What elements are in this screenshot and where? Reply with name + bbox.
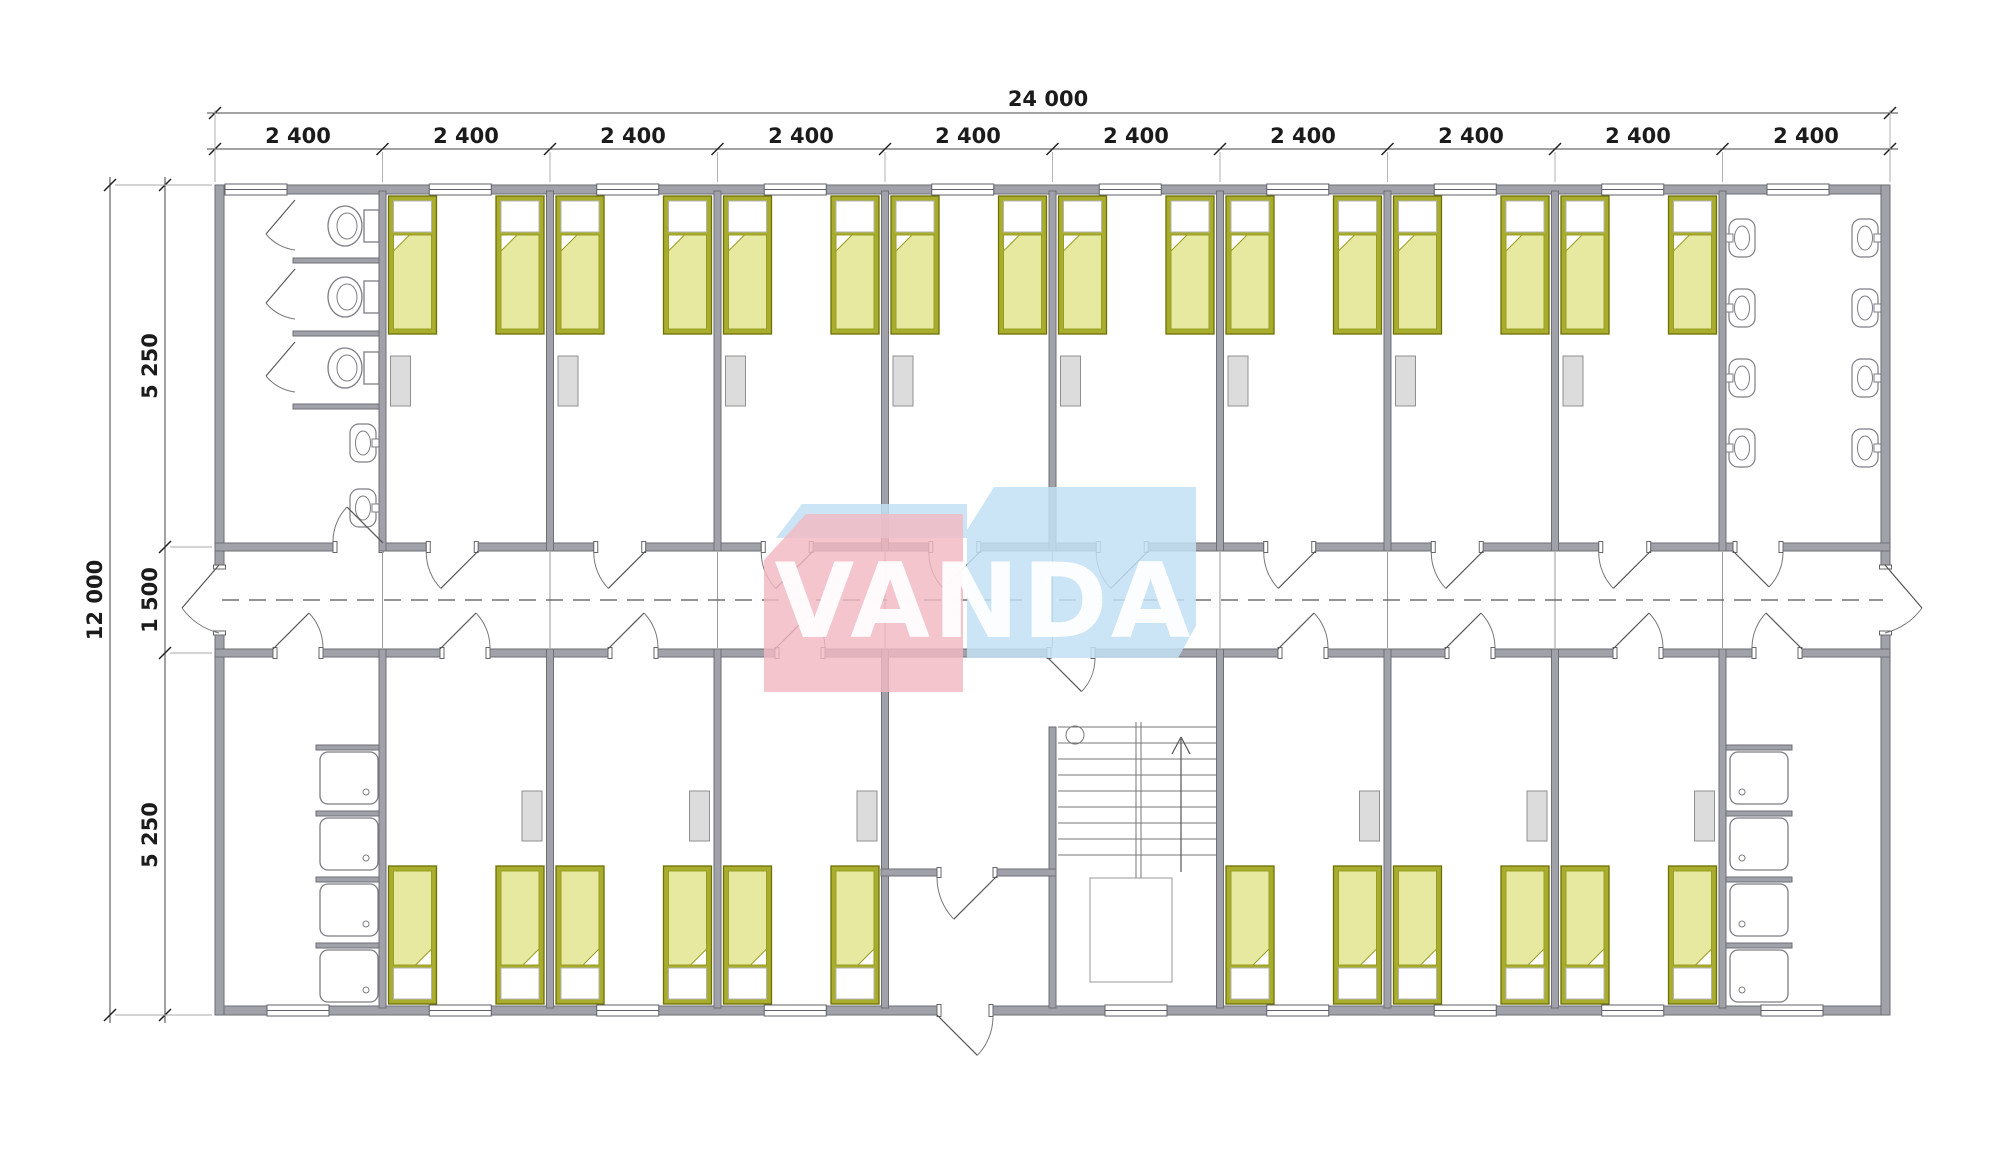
corridor-wall-top <box>215 543 333 551</box>
door-leaf <box>608 551 645 588</box>
bed-pillow <box>896 201 934 232</box>
partition-wall-bottom <box>1217 649 1224 1008</box>
door-swing-arc <box>1264 553 1279 588</box>
door-leaf <box>1613 613 1649 649</box>
bed-pillow <box>1171 201 1209 232</box>
stall-wall <box>293 404 382 409</box>
door-leaf <box>1733 551 1769 587</box>
bed-blanket <box>1339 871 1377 965</box>
locker <box>726 356 746 406</box>
bed-blanket <box>729 871 767 965</box>
bed-pillow <box>1231 968 1269 999</box>
door-jamb <box>1659 648 1663 659</box>
bed-blanket <box>561 235 599 329</box>
door-leaf <box>182 565 219 608</box>
bed-pillow <box>1064 201 1102 232</box>
door-swing-arc <box>644 613 658 647</box>
bed-pillow <box>501 201 539 232</box>
shower-tray <box>1730 752 1788 804</box>
bed-blanket <box>1231 235 1269 329</box>
bed-pillow <box>1231 201 1269 232</box>
door-swing-arc <box>1599 553 1614 588</box>
shower-stall-wall <box>1726 811 1792 816</box>
locker <box>522 791 542 841</box>
stair-lower-flight-outline <box>1090 878 1172 982</box>
bed-blanket <box>669 871 707 965</box>
door-jamb <box>1431 542 1435 553</box>
door-jamb <box>1752 648 1756 659</box>
toilet-tank <box>364 352 379 384</box>
bed-blanket <box>836 871 874 965</box>
bed-blanket <box>669 235 707 329</box>
partition-wall-bottom <box>1552 649 1559 1008</box>
door-swing-arc <box>426 553 441 588</box>
dim-module-label-8: 2 400 <box>1438 124 1504 148</box>
door-jamb <box>937 868 941 878</box>
locker <box>1563 356 1583 406</box>
floorplan-page: 24 000 2 400 2 400 2 400 2 400 2 400 2 4… <box>0 0 2000 1175</box>
partition-wall-top <box>882 191 889 551</box>
door-swing-arc <box>476 613 490 647</box>
dim-total-width-label: 24 000 <box>1008 87 1088 111</box>
dim-module-label-4: 2 400 <box>768 124 834 148</box>
corridor-wall-top <box>1783 543 1890 551</box>
door-leaf <box>954 876 997 919</box>
dim-module-label-7: 2 400 <box>1270 124 1336 148</box>
door-leaf <box>441 551 478 588</box>
locker <box>1527 791 1547 841</box>
locker <box>893 356 913 406</box>
bed-blanket <box>501 235 539 329</box>
door-leaf <box>1445 613 1481 649</box>
partition-wall-top <box>1552 191 1559 551</box>
bed-blanket <box>1171 235 1209 329</box>
stall-door-arc <box>266 303 295 319</box>
dim-total-height-label: 12 000 <box>83 560 107 640</box>
locker <box>1360 791 1380 841</box>
door-jamb <box>333 542 337 553</box>
dim-module-label-1: 2 400 <box>265 124 331 148</box>
partition-wall-top <box>379 191 386 551</box>
locker <box>1061 356 1081 406</box>
bed-pillow <box>1566 968 1604 999</box>
stall-wall <box>293 331 382 336</box>
shower-stall-wall <box>1726 745 1792 750</box>
bed-pillow <box>1004 201 1042 232</box>
partition-wall-top <box>1384 191 1391 551</box>
partition-wall-bottom <box>1384 649 1391 1008</box>
vestibule-wall <box>997 869 1056 876</box>
stall-door-arc <box>266 376 295 392</box>
door-swing-arc <box>1481 613 1495 647</box>
door-jamb <box>1491 648 1495 659</box>
corridor-wall-top <box>1483 543 1599 551</box>
exterior-wall-right <box>1881 185 1890 565</box>
bed-blanket <box>1064 235 1102 329</box>
bed-pillow <box>836 968 874 999</box>
door-leaf <box>1278 551 1315 588</box>
door-jamb <box>319 648 323 659</box>
door-jamb <box>937 1005 941 1017</box>
bed-blanket <box>1506 871 1544 965</box>
door-swing-arc <box>1314 613 1328 647</box>
bed-pillow <box>669 968 707 999</box>
door-jamb <box>1599 542 1603 553</box>
partition-wall-top <box>714 191 721 551</box>
bed-pillow <box>1339 201 1377 232</box>
bed-pillow <box>1506 968 1544 999</box>
partition-wall-bottom <box>1049 727 1056 1008</box>
dim-module-label-2: 2 400 <box>433 124 499 148</box>
door-jamb <box>1264 542 1268 553</box>
door-swing-arc <box>333 507 347 541</box>
stall-door-arc <box>266 234 295 250</box>
locker <box>857 791 877 841</box>
shower-tray <box>320 752 378 804</box>
corridor-wall-top <box>1316 543 1432 551</box>
door-jamb <box>486 648 490 659</box>
bed-pillow <box>1674 201 1712 232</box>
exterior-wall-left <box>215 635 224 1015</box>
bed-pillow <box>729 201 767 232</box>
bed-blanket <box>1231 871 1269 965</box>
bed-blanket <box>1339 235 1377 329</box>
partition-wall-top <box>547 191 554 551</box>
door-swing-arc <box>594 553 609 588</box>
door-jamb <box>654 648 658 659</box>
shower-tray <box>320 884 378 936</box>
floor-plan: 24 000 2 400 2 400 2 400 2 400 2 400 2 4… <box>0 0 2000 1175</box>
door-swing-arc <box>1082 659 1095 692</box>
door-jamb <box>989 1005 993 1017</box>
corridor-wall-bottom <box>1663 649 1752 657</box>
toilet-tank <box>364 210 379 242</box>
bed-blanket <box>1566 235 1604 329</box>
shower-stall-wall <box>316 877 382 882</box>
bed-pillow <box>1399 201 1437 232</box>
toilet-tank <box>364 281 379 313</box>
vestibule-wall <box>881 869 937 876</box>
door-leaf <box>1047 657 1082 692</box>
dim-module-label-10: 2 400 <box>1773 124 1839 148</box>
shower-stall-wall <box>316 943 382 948</box>
stall-door-leaf <box>266 200 295 234</box>
stair-arrow-head <box>1172 737 1181 754</box>
partition-wall-top <box>1719 191 1726 551</box>
door-leaf <box>1446 551 1483 588</box>
bed-pillow <box>561 968 599 999</box>
dim-segment-label-corridor: 1 500 <box>138 567 162 633</box>
stair-start-post <box>1066 726 1084 744</box>
shower-stall-wall <box>1726 943 1792 948</box>
door-jamb <box>1779 542 1783 553</box>
stall-door-leaf <box>266 269 295 303</box>
partition-wall-top <box>1217 191 1224 551</box>
bed-blanket <box>1399 871 1437 965</box>
dim-segment-label-top: 5 250 <box>138 333 162 399</box>
bed-blanket <box>1566 871 1604 965</box>
door-swing-arc <box>1769 553 1783 587</box>
dim-module-label-9: 2 400 <box>1605 124 1671 148</box>
bed-blanket <box>896 235 934 329</box>
door-swing-arc <box>1752 613 1766 647</box>
bed-blanket <box>1506 235 1544 329</box>
locker <box>391 356 411 406</box>
door-leaf <box>1766 613 1802 649</box>
stall-wall <box>293 258 382 263</box>
bed-blanket <box>501 871 539 965</box>
door-leaf <box>273 613 309 649</box>
shower-tray <box>1730 950 1788 1002</box>
bed-pillow <box>1566 201 1604 232</box>
locker <box>1695 791 1715 841</box>
door-swing-arc <box>1431 553 1446 588</box>
locker <box>1396 356 1416 406</box>
bed-pillow <box>1674 968 1712 999</box>
shower-tray <box>320 950 378 1002</box>
bed-blanket <box>1674 235 1712 329</box>
stair-arrow-head <box>1181 737 1190 754</box>
bed-pillow <box>501 968 539 999</box>
door-swing-arc <box>1649 613 1663 647</box>
dim-segment-label-bottom: 5 250 <box>138 802 162 868</box>
bed-pillow <box>1506 201 1544 232</box>
bed-blanket <box>394 235 432 329</box>
exterior-wall-left <box>215 185 224 565</box>
bed-blanket <box>394 871 432 965</box>
corridor-wall-bottom <box>215 649 273 657</box>
bed-pillow <box>1399 968 1437 999</box>
locker <box>690 791 710 841</box>
bed-pillow <box>394 968 432 999</box>
door-jamb <box>761 542 765 553</box>
partition-wall-bottom <box>714 649 721 1008</box>
vanda-watermark-text: VANDA <box>775 542 1194 662</box>
door-swing-arc <box>182 608 219 633</box>
bed-pillow <box>394 201 432 232</box>
door-leaf <box>440 613 476 649</box>
bed-blanket <box>1674 871 1712 965</box>
partition-wall-bottom <box>882 649 889 1008</box>
door-swing-arc <box>977 1017 993 1055</box>
partition-wall-bottom <box>379 649 386 1008</box>
bed-pillow <box>561 201 599 232</box>
locker <box>558 356 578 406</box>
bed-blanket <box>561 871 599 965</box>
corridor-wall-bottom <box>1802 649 1890 657</box>
shower-stall-wall <box>316 811 382 816</box>
door-jamb <box>1324 648 1328 659</box>
shower-stall-wall <box>1726 877 1792 882</box>
bed-pillow <box>669 201 707 232</box>
bed-blanket <box>1399 235 1437 329</box>
corridor-wall-top <box>478 543 594 551</box>
exterior-wall-right <box>1881 635 1890 1015</box>
door-leaf <box>1885 565 1922 608</box>
partition-wall-bottom <box>547 649 554 1008</box>
partition-wall-bottom <box>1719 649 1726 1008</box>
corridor-wall-top <box>383 543 426 551</box>
door-leaf <box>608 613 644 649</box>
door-swing-arc <box>309 613 323 647</box>
bed-blanket <box>729 235 767 329</box>
shower-tray <box>1730 818 1788 870</box>
door-swing-arc <box>1885 608 1922 633</box>
stall-door-leaf <box>266 342 295 376</box>
bed-blanket <box>1004 235 1042 329</box>
locker <box>1228 356 1248 406</box>
dim-module-label-5: 2 400 <box>935 124 1001 148</box>
dim-module-label-3: 2 400 <box>600 124 666 148</box>
bed-pillow <box>836 201 874 232</box>
bed-pillow <box>729 968 767 999</box>
door-leaf <box>937 1015 977 1055</box>
door-jamb <box>426 542 430 553</box>
bed-blanket <box>836 235 874 329</box>
shower-stall-wall <box>316 745 382 750</box>
shower-tray <box>1730 884 1788 936</box>
corridor-wall-top <box>646 543 762 551</box>
door-swing-arc <box>937 878 954 919</box>
dim-module-label-6: 2 400 <box>1103 124 1169 148</box>
bed-pillow <box>1339 968 1377 999</box>
door-leaf <box>1278 613 1314 649</box>
door-leaf <box>1613 551 1650 588</box>
door-jamb <box>594 542 598 553</box>
shower-tray <box>320 818 378 870</box>
